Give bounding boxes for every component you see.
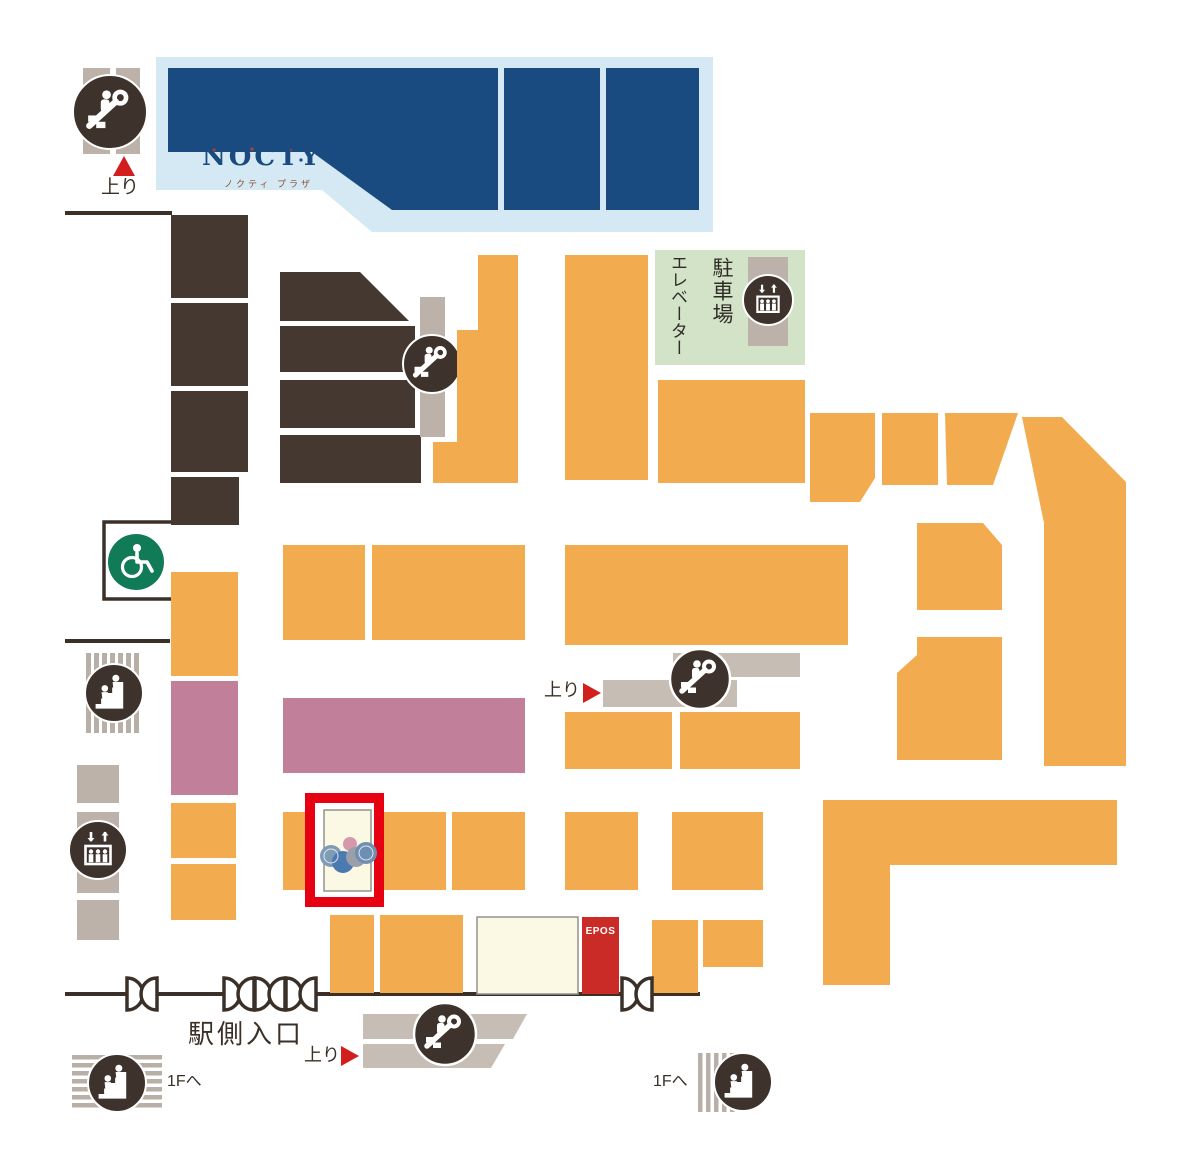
facility-block [171, 303, 248, 386]
nocty-block [504, 68, 600, 210]
highlighted-store [305, 793, 384, 907]
facility-block [280, 326, 415, 372]
nocty-block [606, 68, 699, 210]
facility-block [280, 380, 415, 428]
accessible-restroom [104, 522, 171, 599]
escalator-unit-bottom [341, 1003, 527, 1068]
up-arrow-icon [341, 1046, 359, 1066]
shop-block [330, 915, 374, 993]
to-1f-label-left: 1Fへ [167, 1074, 202, 1090]
elevator-shaft [77, 900, 119, 940]
shop-block [565, 545, 848, 645]
escalator-unit-top-left [73, 68, 147, 176]
shop-block [658, 380, 805, 483]
up-label-center: 上り [544, 681, 580, 699]
shop-block [171, 864, 236, 920]
shop-block-mauve [171, 681, 238, 795]
facility-block [171, 477, 239, 525]
shop-block [452, 812, 525, 890]
door-icon [127, 978, 157, 1010]
floor-map: NOCTY ノクティ プラザ 上り 上り 上り 駐車場 エレベーター 駅側入口 … [0, 0, 1188, 1164]
elevator-shaft [77, 765, 119, 803]
to-1f-label-right: 1Fへ [653, 1074, 688, 1090]
shop-block [672, 812, 763, 890]
nocty-logo-subtitle: ノクティ プラザ [224, 180, 313, 189]
facility-rows-center [280, 272, 421, 483]
shop-block [380, 915, 463, 993]
escalator-icon [670, 649, 730, 709]
escalator-icon [403, 335, 461, 393]
up-label-top-left: 上り [101, 178, 139, 197]
up-arrow-icon [113, 156, 135, 176]
shop-block [372, 545, 525, 640]
stairs-unit-bottom-right [698, 1053, 772, 1112]
shop-block-cream [477, 917, 578, 994]
shop-block [652, 920, 698, 993]
escalator-icon [73, 75, 147, 149]
stairs-unit-left [85, 653, 143, 733]
shop-block-L [823, 800, 1117, 985]
facility-block [280, 435, 421, 483]
escalator-icon [414, 1003, 476, 1065]
door-icon [286, 978, 316, 1010]
facility-column-left [171, 215, 248, 525]
shop-block-diagonal-arm [1022, 417, 1126, 766]
facility-block [171, 215, 248, 298]
door-icon [622, 978, 652, 1010]
shop-block [680, 712, 800, 769]
nocty-logo: NOCTY [202, 144, 322, 170]
shop-block [171, 572, 238, 676]
shop-block [945, 413, 1018, 485]
shop-block [810, 413, 875, 502]
epos-logo: EPOS [582, 927, 619, 937]
door-icon [255, 978, 285, 1010]
stairs-unit-bottom-left [72, 1054, 162, 1112]
facility-block [171, 391, 248, 472]
shop-block-mauve [283, 698, 525, 773]
shop-block [882, 413, 938, 485]
shop-block [565, 812, 638, 890]
parking-elevator-label: エレベーター [669, 254, 686, 368]
door-icon [224, 978, 254, 1010]
facility-block [280, 272, 409, 321]
shop-row-5 [330, 915, 763, 994]
shop-block [283, 545, 365, 640]
shop-block [565, 255, 648, 480]
station-entrance-label: 駅側入口 [188, 1021, 304, 1047]
shop-block [171, 803, 236, 858]
up-arrow-icon [583, 683, 601, 703]
shop-block [565, 712, 672, 769]
elevator-unit-left [69, 765, 127, 940]
parking-label: 駐車場 [711, 257, 732, 365]
shop-block [917, 523, 1002, 610]
shop-column-left [171, 572, 238, 920]
shop-block [703, 920, 763, 967]
escalator-unit-center [583, 649, 800, 709]
shop-block [897, 637, 1002, 760]
up-label-bottom: 上り [304, 1046, 340, 1064]
shop-row-4 [283, 793, 763, 907]
